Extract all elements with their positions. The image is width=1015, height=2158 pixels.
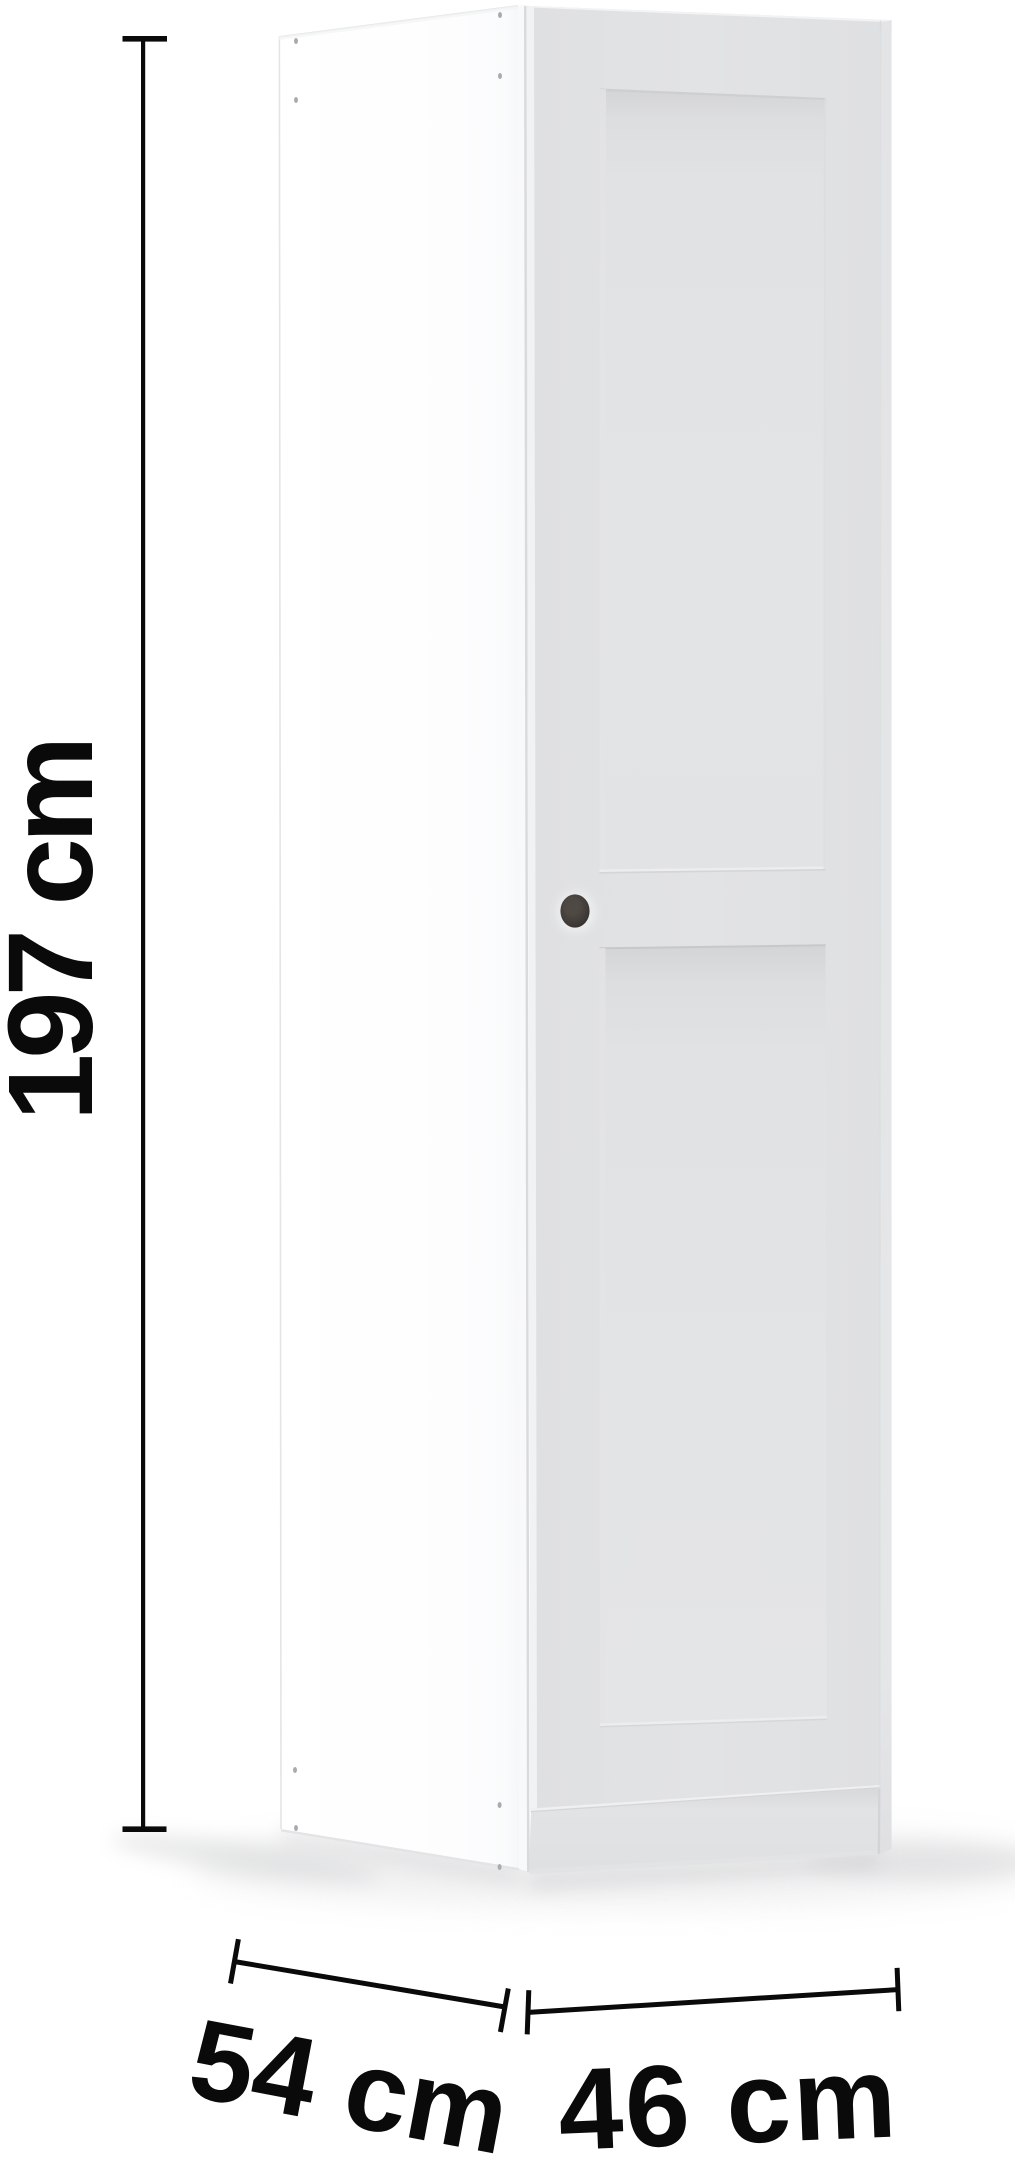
svg-text:46 cm: 46 cm <box>556 2031 901 2158</box>
svg-text:197 cm: 197 cm <box>0 741 118 1121</box>
